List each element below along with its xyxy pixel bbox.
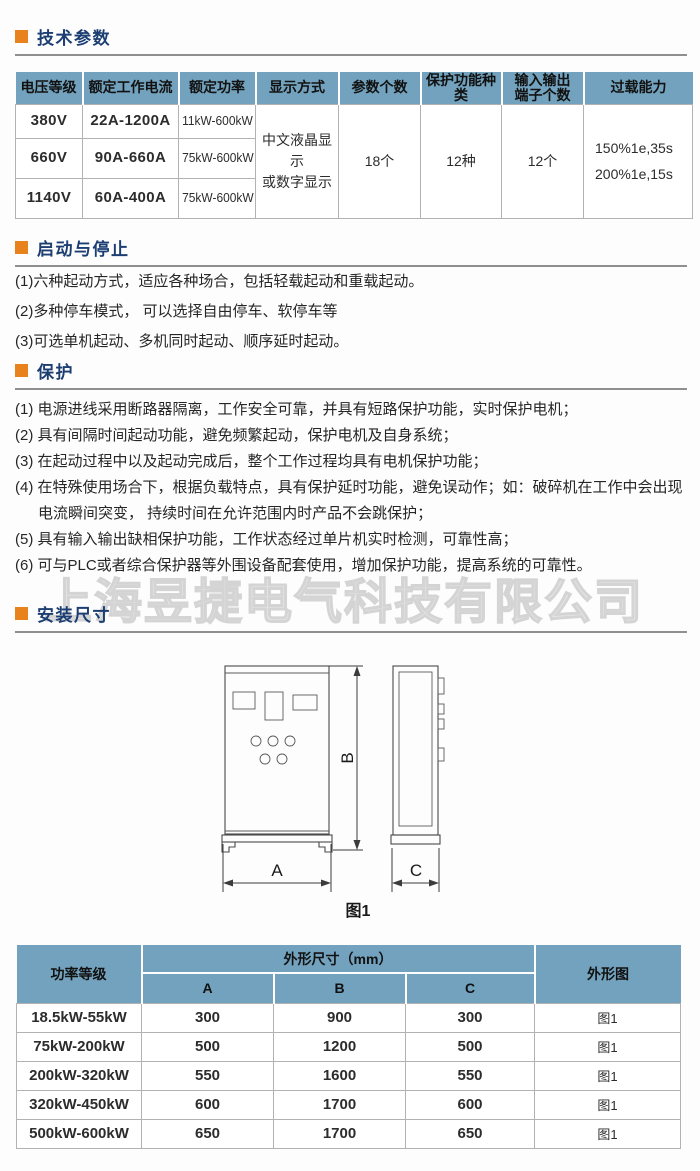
power-cell: 75kW-600kW [179, 138, 256, 178]
cabinet-dimension-diagram: B A C 图1 [170, 652, 525, 937]
dim-b-value: 1700 [274, 1119, 406, 1148]
col-display-mode: 显示方式 [256, 72, 339, 104]
list-item: (2)多种停车模式， 可以选择自由停车、软停车等 [15, 297, 691, 327]
orange-square-icon [15, 364, 28, 377]
section-head-protection: 保护 [15, 358, 687, 390]
outline-ref: 图1 [535, 1061, 681, 1090]
col-rated-power: 额定功率 [179, 72, 256, 104]
dim-c-value: 550 [406, 1061, 535, 1090]
section-title-install: 安装尺寸 [37, 601, 111, 626]
panel-button [251, 736, 261, 746]
table-row: 200kW-320kW 550 1600 550 图1 [17, 1061, 681, 1090]
dim-c-value: 600 [406, 1090, 535, 1119]
section-title-start-stop: 启动与停止 [37, 235, 130, 260]
table-row: 75kW-200kW 500 1200 500 图1 [17, 1032, 681, 1061]
panel-button [277, 754, 287, 764]
panel-button [268, 736, 278, 746]
col-param-count: 参数个数 [339, 72, 421, 104]
list-item: (4) 在特殊使用场合下，根据负载特点，具有保护延时功能，避免误动作；如：破碎机… [15, 475, 691, 527]
spec-header-row: 电压等级 额定工作电流 额定功率 显示方式 参数个数 保护功能种类 输入输出 端… [16, 72, 693, 104]
dim-a-value: 600 [142, 1090, 274, 1119]
protection-list: (1) 电源进线采用断路器隔离，工作安全可靠，并具有短路保护功能，实时保护电机；… [15, 397, 691, 579]
spec-sheet-page: { "colors": { "table_header_bg": "#72a2b… [0, 0, 700, 1171]
orange-square-icon [15, 30, 28, 43]
overload-line1: 150%1e,35s [595, 135, 692, 161]
power-range: 500kW-600kW [17, 1119, 142, 1148]
io-header-line2: 端子个数 [503, 88, 583, 103]
section-head-start-stop: 启动与停止 [15, 235, 687, 267]
start-stop-list: (1)六种起动方式，适应各种场合，包括轻载起动和重载起动。 (2)多种停车模式，… [15, 267, 691, 357]
voltage-value: 1140V [27, 189, 72, 206]
panel-button [285, 736, 295, 746]
outline-ref: 图1 [535, 1119, 681, 1148]
hinge-tab [438, 719, 444, 729]
orange-square-icon [15, 607, 28, 620]
figure-caption: 图1 [346, 902, 371, 920]
col-dim-b: B [274, 973, 406, 1003]
dim-a-value: 650 [142, 1119, 274, 1148]
dim-c-value: 500 [406, 1032, 535, 1061]
dimension-table: 功率等级 外形尺寸（mm） 外形图 A B C 18.5kW-55kW 300 … [16, 945, 681, 1149]
orange-square-icon [15, 241, 28, 254]
voltage-value: 380V [31, 112, 68, 129]
tech-spec-table: 电压等级 额定工作电流 额定功率 显示方式 参数个数 保护功能种类 输入输出 端… [15, 72, 693, 219]
voltage-value: 660V [31, 149, 68, 166]
panel-button [260, 754, 270, 764]
table-row: 18.5kW-55kW 300 900 300 图1 [17, 1003, 681, 1032]
dim-header-row1: 功率等级 外形尺寸（mm） 外形图 [17, 945, 681, 973]
col-rated-current: 额定工作电流 [83, 72, 179, 104]
list-item: (5) 具有输入输出缺相保护功能，工作状态经过单片机实时检测，可靠性高； [15, 527, 691, 553]
dim-label-c: C [410, 861, 422, 880]
voltage-cell: 660V [16, 138, 83, 178]
power-cell: 75kW-600kW [179, 178, 256, 218]
list-item: (2) 具有间隔时间起动功能，避免频繁起动，保护电机及自身系统； [15, 423, 691, 449]
power-range: 18.5kW-55kW [17, 1003, 142, 1032]
col-overload: 过载能力 [584, 72, 693, 104]
hinge-tab [438, 678, 444, 694]
spec-row-380v: 380V 22A-1200A 11kW-600kW 中文液晶显示 或数字显示 1… [16, 104, 693, 138]
param-count-cell: 18个 [339, 104, 421, 218]
voltage-cell: 380V [16, 104, 83, 138]
power-range: 320kW-450kW [17, 1090, 142, 1119]
foot-right [319, 842, 332, 852]
col-outline-dims: 外形尺寸（mm） [142, 945, 535, 973]
list-item: (6) 可与PLC或者综合保护器等外围设备配套使用，增加保护功能，提高系统的可靠… [15, 553, 691, 579]
overload-cell: 150%1e,35s 200%1e,15s [584, 104, 693, 218]
dim-b-value: 1200 [274, 1032, 406, 1061]
col-outline-figure: 外形图 [535, 945, 681, 1003]
list-item: (3)可选单机起动、多机同时起动、顺序延时起动。 [15, 327, 691, 357]
dim-label-b: B [338, 752, 357, 763]
dim-b-value: 900 [274, 1003, 406, 1032]
col-protection-kinds: 保护功能种类 [421, 72, 502, 104]
power-range: 200kW-320kW [17, 1061, 142, 1090]
panel-window-center [265, 692, 283, 720]
current-value: 90A-660A [95, 149, 167, 166]
dimension-a: A [223, 844, 331, 892]
outline-ref: 图1 [535, 1032, 681, 1061]
col-dim-c: C [406, 973, 535, 1003]
power-cell: 11kW-600kW [179, 104, 256, 138]
current-cell: 60A-400A [83, 178, 179, 218]
section-head-tech: 技术参数 [15, 24, 687, 56]
outline-ref: 图1 [535, 1003, 681, 1032]
dim-a-value: 300 [142, 1003, 274, 1032]
col-power-level: 功率等级 [17, 945, 142, 1003]
installation-drawing: B A C 图1 [170, 652, 525, 937]
dim-b-value: 1700 [274, 1090, 406, 1119]
power-value: 75kW-600kW [182, 190, 254, 205]
display-mode-line1: 中文液晶显示 [256, 130, 338, 172]
hinge-tab [438, 704, 444, 714]
section-title-tech: 技术参数 [37, 24, 111, 49]
power-range: 75kW-200kW [17, 1032, 142, 1061]
side-view [391, 666, 444, 844]
section-title-protection: 保护 [37, 358, 74, 383]
section-head-install: 安装尺寸 [15, 601, 687, 633]
dim-c-value: 300 [406, 1003, 535, 1032]
table-row: 500kW-600kW 650 1700 650 图1 [17, 1119, 681, 1148]
current-cell: 90A-660A [83, 138, 179, 178]
io-header-line1: 输入输出 [503, 73, 583, 88]
protection-kinds-cell: 12种 [421, 104, 502, 218]
current-cell: 22A-1200A [83, 104, 179, 138]
col-io-terminals: 输入输出 端子个数 [502, 72, 584, 104]
dim-a-value: 550 [142, 1061, 274, 1090]
dim-a-value: 500 [142, 1032, 274, 1061]
dimension-c: C [392, 848, 439, 892]
dimension-b: B [329, 666, 363, 850]
overload-line2: 200%1e,15s [595, 161, 692, 187]
col-voltage: 电压等级 [16, 72, 83, 104]
foot-left [222, 842, 235, 852]
list-item: (1)六种起动方式，适应各种场合，包括轻载起动和重载起动。 [15, 267, 691, 297]
front-view [222, 666, 332, 852]
display-mode-line2: 或数字显示 [256, 172, 338, 193]
display-mode-cell: 中文液晶显示 或数字显示 [256, 104, 339, 218]
table-row: 320kW-450kW 600 1700 600 图1 [17, 1090, 681, 1119]
col-dim-a: A [142, 973, 274, 1003]
io-terminal-count-cell: 12个 [502, 104, 584, 218]
list-item: (3) 在起动过程中以及起动完成后，整个工作过程均具有电机保护功能； [15, 449, 691, 475]
power-value: 75kW-600kW [182, 150, 254, 165]
current-value: 60A-400A [95, 189, 167, 206]
dim-c-value: 650 [406, 1119, 535, 1148]
current-value: 22A-1200A [90, 112, 170, 129]
panel-window-left [233, 692, 255, 709]
outline-ref: 图1 [535, 1090, 681, 1119]
dim-label-a: A [271, 861, 283, 880]
panel-window-right [293, 695, 317, 710]
hinge-tab [438, 748, 444, 761]
dim-b-value: 1600 [274, 1061, 406, 1090]
list-item: (1) 电源进线采用断路器隔离，工作安全可靠，并具有短路保护功能，实时保护电机； [15, 397, 691, 423]
power-value: 11kW-600kW [182, 113, 253, 128]
voltage-cell: 1140V [16, 178, 83, 218]
